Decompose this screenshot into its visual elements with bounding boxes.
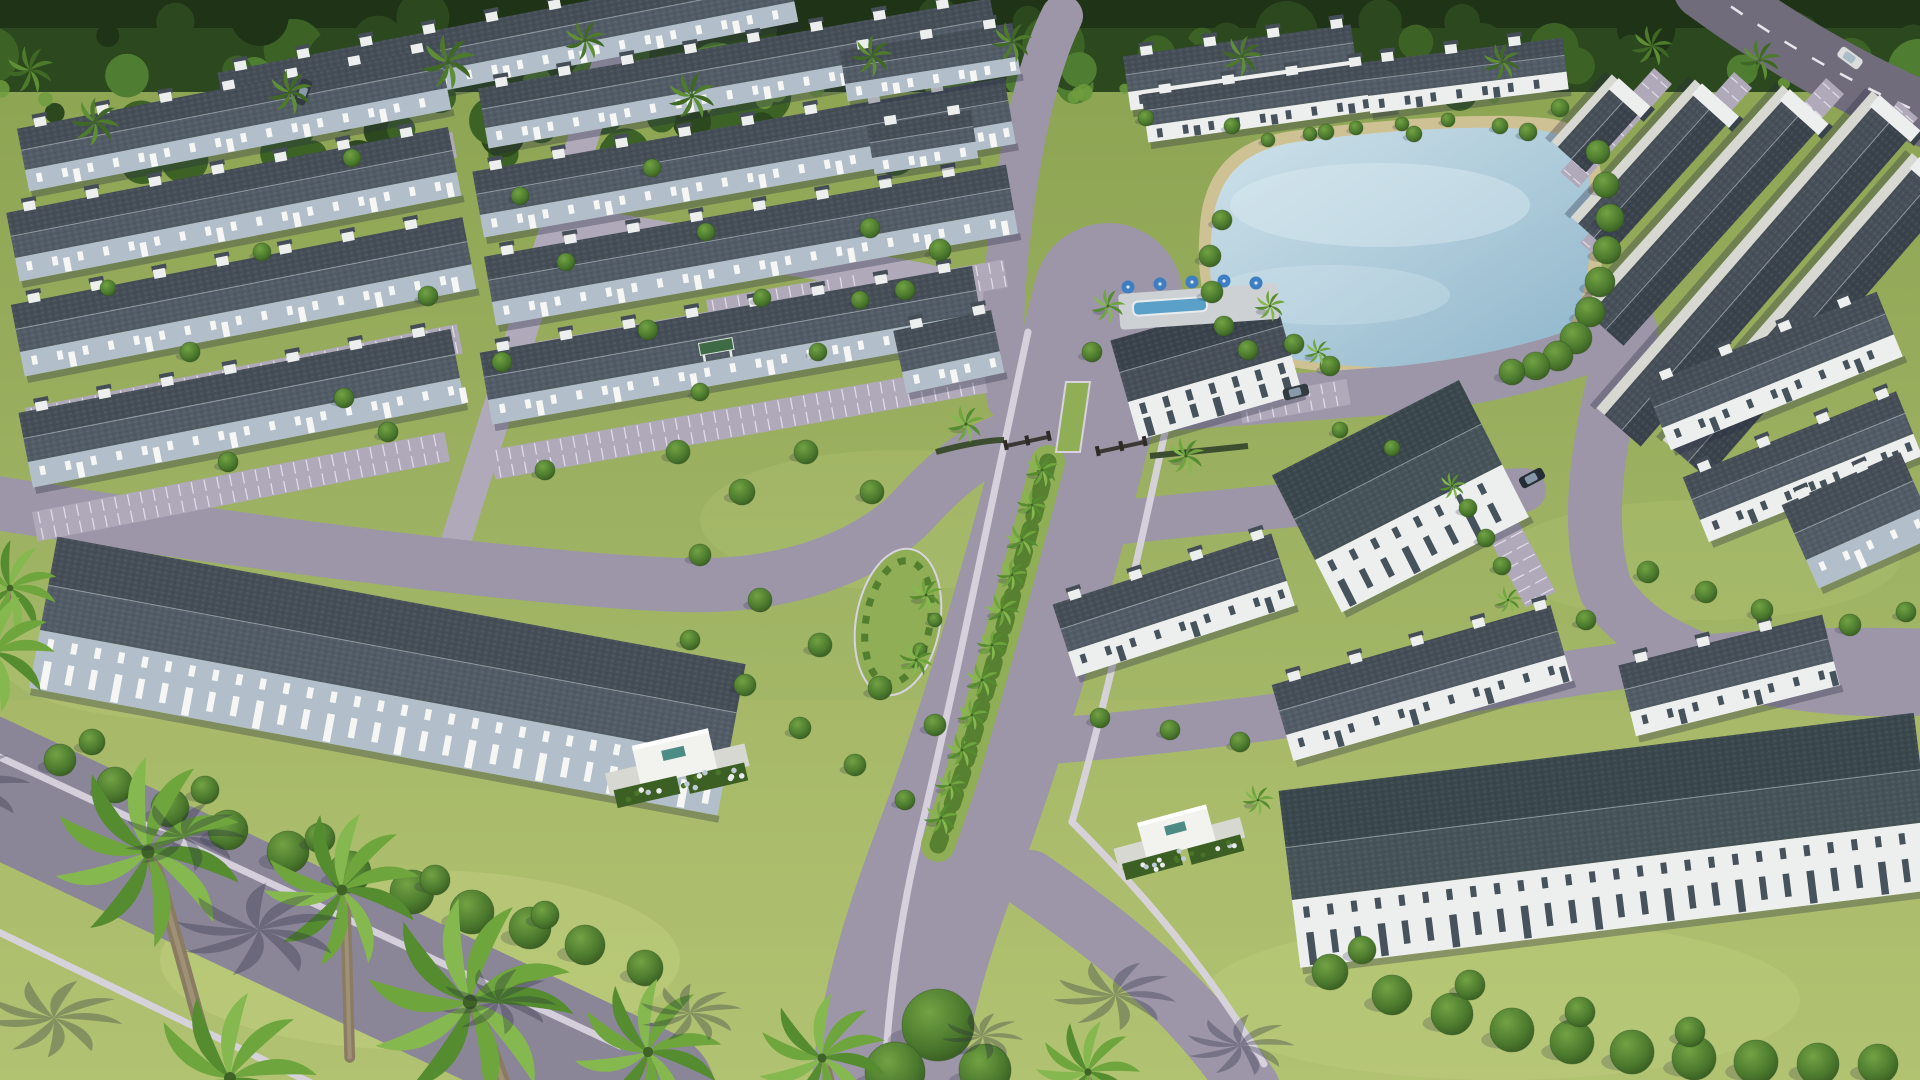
tree (851, 291, 869, 309)
aerial-community-rendering (0, 0, 1920, 1080)
tree (1201, 281, 1223, 303)
tree (1372, 975, 1412, 1015)
tree (1593, 236, 1621, 264)
tree (531, 901, 559, 929)
tree (627, 950, 663, 986)
tree (44, 744, 76, 776)
forest-highlight (38, 92, 53, 107)
tree (1406, 126, 1422, 142)
palm-crown-center (1317, 351, 1319, 353)
tree (794, 440, 818, 464)
gable-dormer (1158, 83, 1171, 94)
tree (378, 422, 398, 442)
tree (1312, 954, 1348, 990)
tree (180, 342, 200, 362)
tree (1212, 210, 1232, 230)
tree (1593, 172, 1619, 198)
door (1493, 87, 1501, 98)
gable-dormer (920, 29, 933, 40)
tree (1839, 614, 1861, 636)
window (1456, 89, 1463, 99)
gable-dormer (1203, 36, 1216, 47)
tree (1459, 499, 1477, 517)
umbrella-center (1190, 280, 1193, 283)
tree (343, 149, 361, 167)
gable-dormer (1508, 36, 1521, 46)
tree (729, 479, 755, 505)
forest-tree (96, 24, 119, 47)
tree (1576, 610, 1596, 630)
door (1193, 125, 1201, 136)
door (1271, 114, 1279, 125)
tree (1160, 720, 1180, 740)
tree (844, 754, 866, 776)
tree (1858, 1044, 1898, 1080)
gable-dormer (884, 115, 897, 126)
palm-crown-center (1257, 799, 1260, 802)
tree (697, 223, 715, 241)
tree (680, 630, 700, 650)
tree (1565, 997, 1595, 1027)
tree (1332, 422, 1348, 438)
tree (511, 187, 529, 205)
tree (1551, 99, 1569, 117)
palm-crown-center (925, 594, 928, 597)
tree (809, 343, 827, 361)
gable-dormer (1330, 19, 1343, 30)
tree (789, 717, 811, 739)
door (1415, 96, 1423, 107)
tree (1477, 529, 1495, 547)
tree (1320, 356, 1340, 376)
tree (929, 239, 951, 261)
tree (1455, 970, 1485, 1000)
tree (1734, 1040, 1778, 1080)
palm-crown-center (1269, 305, 1272, 308)
tree (808, 633, 832, 657)
tree (1586, 140, 1610, 164)
palm-crown-center (28, 68, 32, 72)
gable-dormer (1444, 44, 1457, 54)
window (1378, 98, 1385, 108)
gable-dormer (1349, 56, 1362, 67)
tree (895, 790, 915, 810)
tree (666, 440, 690, 464)
gable-dormer (1222, 74, 1235, 85)
tree (1596, 204, 1624, 232)
umbrella-center (1158, 282, 1161, 285)
palm-crown-center (288, 90, 292, 94)
palm-crown-center (964, 422, 967, 425)
gable-dormer (947, 105, 960, 116)
tree (1384, 440, 1400, 456)
tree (1695, 581, 1717, 603)
tree (1284, 334, 1304, 354)
tree (218, 452, 238, 472)
tree (191, 776, 219, 804)
tree (1585, 267, 1615, 297)
gable-dormer (1140, 45, 1153, 56)
tree (1138, 110, 1154, 126)
tree (1490, 1008, 1534, 1052)
gable-dormer (1285, 65, 1298, 76)
tree (1318, 124, 1334, 140)
tree (100, 280, 116, 296)
scene-canvas (0, 0, 1920, 1080)
tree (928, 613, 942, 627)
palm-crown-center (446, 60, 451, 65)
tree (1348, 936, 1376, 964)
tree (1499, 359, 1525, 385)
palm-crown-center (1507, 599, 1509, 601)
palm-crown-center (1451, 485, 1453, 487)
tree (334, 388, 354, 408)
tree (535, 460, 555, 480)
tree (860, 480, 884, 504)
tree (860, 218, 880, 238)
tree (748, 588, 772, 612)
tree (1224, 118, 1240, 134)
palm-crown-center (940, 817, 943, 820)
tree (924, 714, 946, 736)
tree (1199, 245, 1221, 267)
tree (1395, 117, 1409, 131)
tree (895, 280, 915, 300)
tree (1675, 1017, 1705, 1047)
tree (1493, 557, 1511, 575)
palm-crown-center (1758, 58, 1762, 62)
forest-tree (105, 54, 148, 97)
tree (1519, 123, 1537, 141)
forest-tree (156, 3, 194, 41)
tree (1896, 602, 1916, 622)
door (1348, 103, 1356, 114)
tree (565, 925, 605, 965)
tree (1082, 342, 1102, 362)
tree (1261, 133, 1275, 147)
palm-crown-center (1010, 40, 1014, 44)
tree (1610, 1030, 1654, 1074)
forest-tree (1358, 0, 1401, 43)
tree (557, 253, 575, 271)
water-highlight (1230, 163, 1530, 247)
tree (753, 289, 771, 307)
gable-dormer (1381, 52, 1394, 62)
tree (1550, 1020, 1594, 1064)
tree (643, 159, 661, 177)
forest-tree (1399, 25, 1434, 60)
tree (1230, 732, 1250, 752)
umbrella-center (1254, 281, 1257, 284)
palm-crown-center (1650, 44, 1654, 48)
tree (1522, 352, 1550, 380)
umbrella-center (1126, 285, 1129, 288)
gable-dormer (1267, 27, 1280, 38)
window (1507, 83, 1514, 93)
tree (492, 352, 512, 372)
tree (691, 383, 709, 401)
tree (1797, 1043, 1839, 1080)
window (1533, 79, 1540, 89)
tree (1637, 561, 1659, 583)
tree (1349, 121, 1363, 135)
tree (1751, 599, 1773, 621)
umbrella-center (1222, 279, 1225, 282)
tree (253, 243, 271, 261)
tree (1238, 340, 1258, 360)
tree (689, 544, 711, 566)
tree (638, 320, 658, 340)
window (1404, 95, 1411, 105)
palm-crown-center (1041, 469, 1044, 472)
tree (868, 676, 892, 700)
palm-crown-center (1184, 454, 1187, 457)
tree (420, 865, 450, 895)
tree (418, 286, 438, 306)
forest-tree (1444, 4, 1480, 40)
window (1482, 86, 1489, 96)
tree (734, 674, 756, 696)
tree (1090, 708, 1110, 728)
palm-crown-center (1107, 305, 1110, 308)
tree (1214, 316, 1234, 336)
gable-dormer (983, 19, 996, 30)
tree (1441, 113, 1455, 127)
tree (1492, 118, 1508, 134)
window (1430, 92, 1437, 102)
tree (1303, 127, 1317, 141)
forest-highlight (1068, 91, 1081, 104)
tree (79, 729, 105, 755)
